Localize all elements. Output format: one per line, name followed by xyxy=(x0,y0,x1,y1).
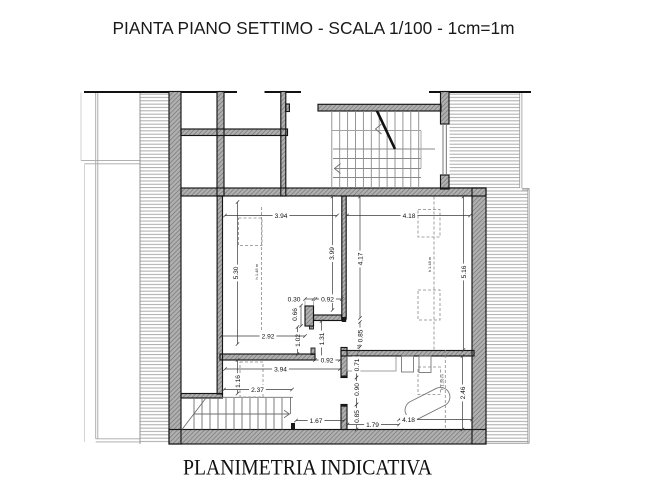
svg-text:h 1.20 m: h 1.20 m xyxy=(440,374,445,390)
svg-text:0.71: 0.71 xyxy=(354,358,361,371)
svg-text:0.92: 0.92 xyxy=(321,358,334,365)
svg-text:4.18: 4.18 xyxy=(403,213,416,220)
svg-text:3.94: 3.94 xyxy=(275,213,288,220)
svg-text:0.90: 0.90 xyxy=(354,383,361,396)
svg-text:1.16: 1.16 xyxy=(235,375,242,388)
svg-text:4.17: 4.17 xyxy=(357,252,364,265)
svg-text:h 1.48 m: h 1.48 m xyxy=(254,263,259,279)
svg-text:5.16: 5.16 xyxy=(461,265,468,278)
svg-text:0.14: 0.14 xyxy=(356,344,361,353)
svg-text:h 1.48 m: h 1.48 m xyxy=(427,256,432,272)
svg-text:0.85: 0.85 xyxy=(354,410,361,423)
svg-text:5.30: 5.30 xyxy=(233,266,240,279)
svg-text:0.30: 0.30 xyxy=(288,297,301,304)
svg-text:2.46: 2.46 xyxy=(460,386,467,399)
svg-text:0.85: 0.85 xyxy=(357,329,364,342)
svg-text:0.66: 0.66 xyxy=(292,308,299,321)
svg-text:3.94: 3.94 xyxy=(274,367,287,374)
svg-text:PIANTA PIANO SETTIMO - SCALA 1: PIANTA PIANO SETTIMO - SCALA 1/100 - 1cm… xyxy=(113,18,515,38)
svg-text:1.31: 1.31 xyxy=(319,332,326,345)
svg-text:1.79: 1.79 xyxy=(366,422,379,429)
svg-text:3.99: 3.99 xyxy=(329,247,336,260)
svg-text:0.92: 0.92 xyxy=(321,297,334,304)
svg-text:1.67: 1.67 xyxy=(310,418,323,425)
svg-text:2.37: 2.37 xyxy=(251,387,264,394)
svg-text:2.92: 2.92 xyxy=(262,334,275,341)
svg-text:4.18: 4.18 xyxy=(402,417,415,424)
svg-text:PLANIMETRIA INDICATIVA: PLANIMETRIA INDICATIVA xyxy=(183,455,432,479)
